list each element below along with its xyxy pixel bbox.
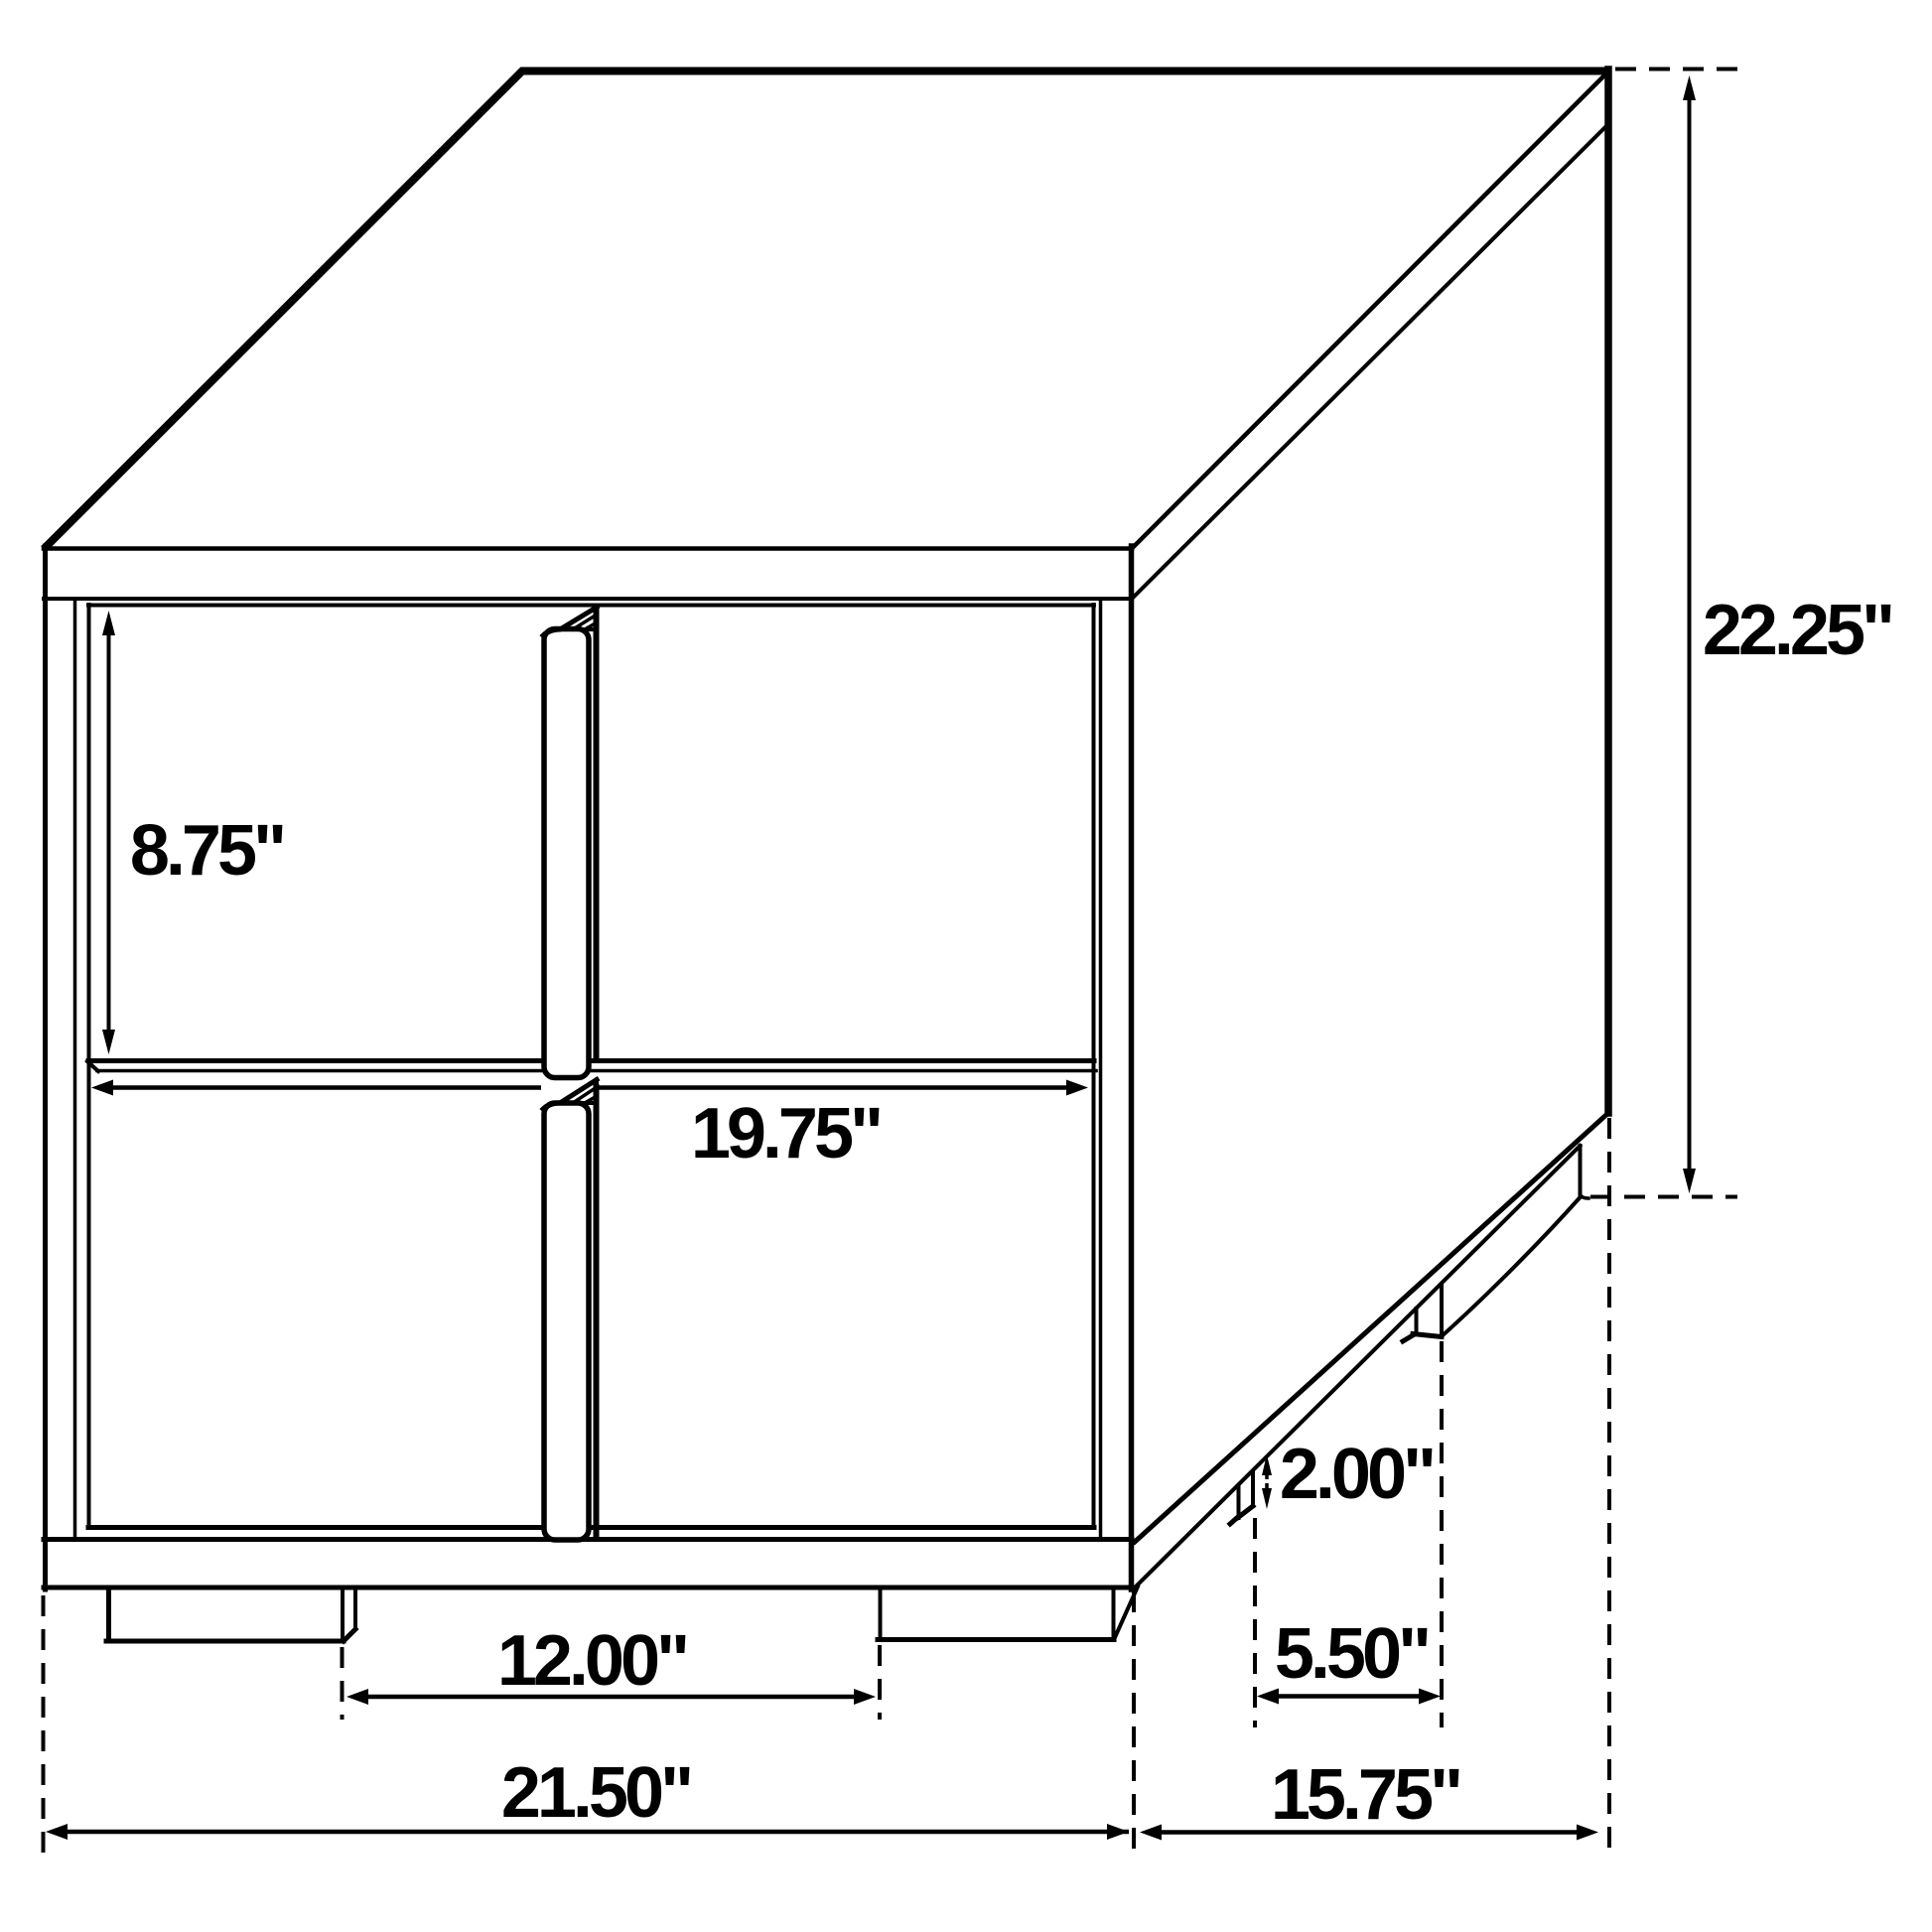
svg-text:21.50": 21.50" xyxy=(501,1753,690,1833)
svg-text:12.00": 12.00" xyxy=(497,1621,686,1701)
svg-text:15.75": 15.75" xyxy=(1271,1755,1459,1835)
svg-text:8.75": 8.75" xyxy=(130,811,283,891)
svg-text:19.75": 19.75" xyxy=(691,1094,880,1173)
svg-text:22.25": 22.25" xyxy=(1703,591,1891,670)
svg-text:2.00": 2.00" xyxy=(1280,1435,1433,1514)
svg-text:5.50": 5.50" xyxy=(1275,1614,1428,1694)
